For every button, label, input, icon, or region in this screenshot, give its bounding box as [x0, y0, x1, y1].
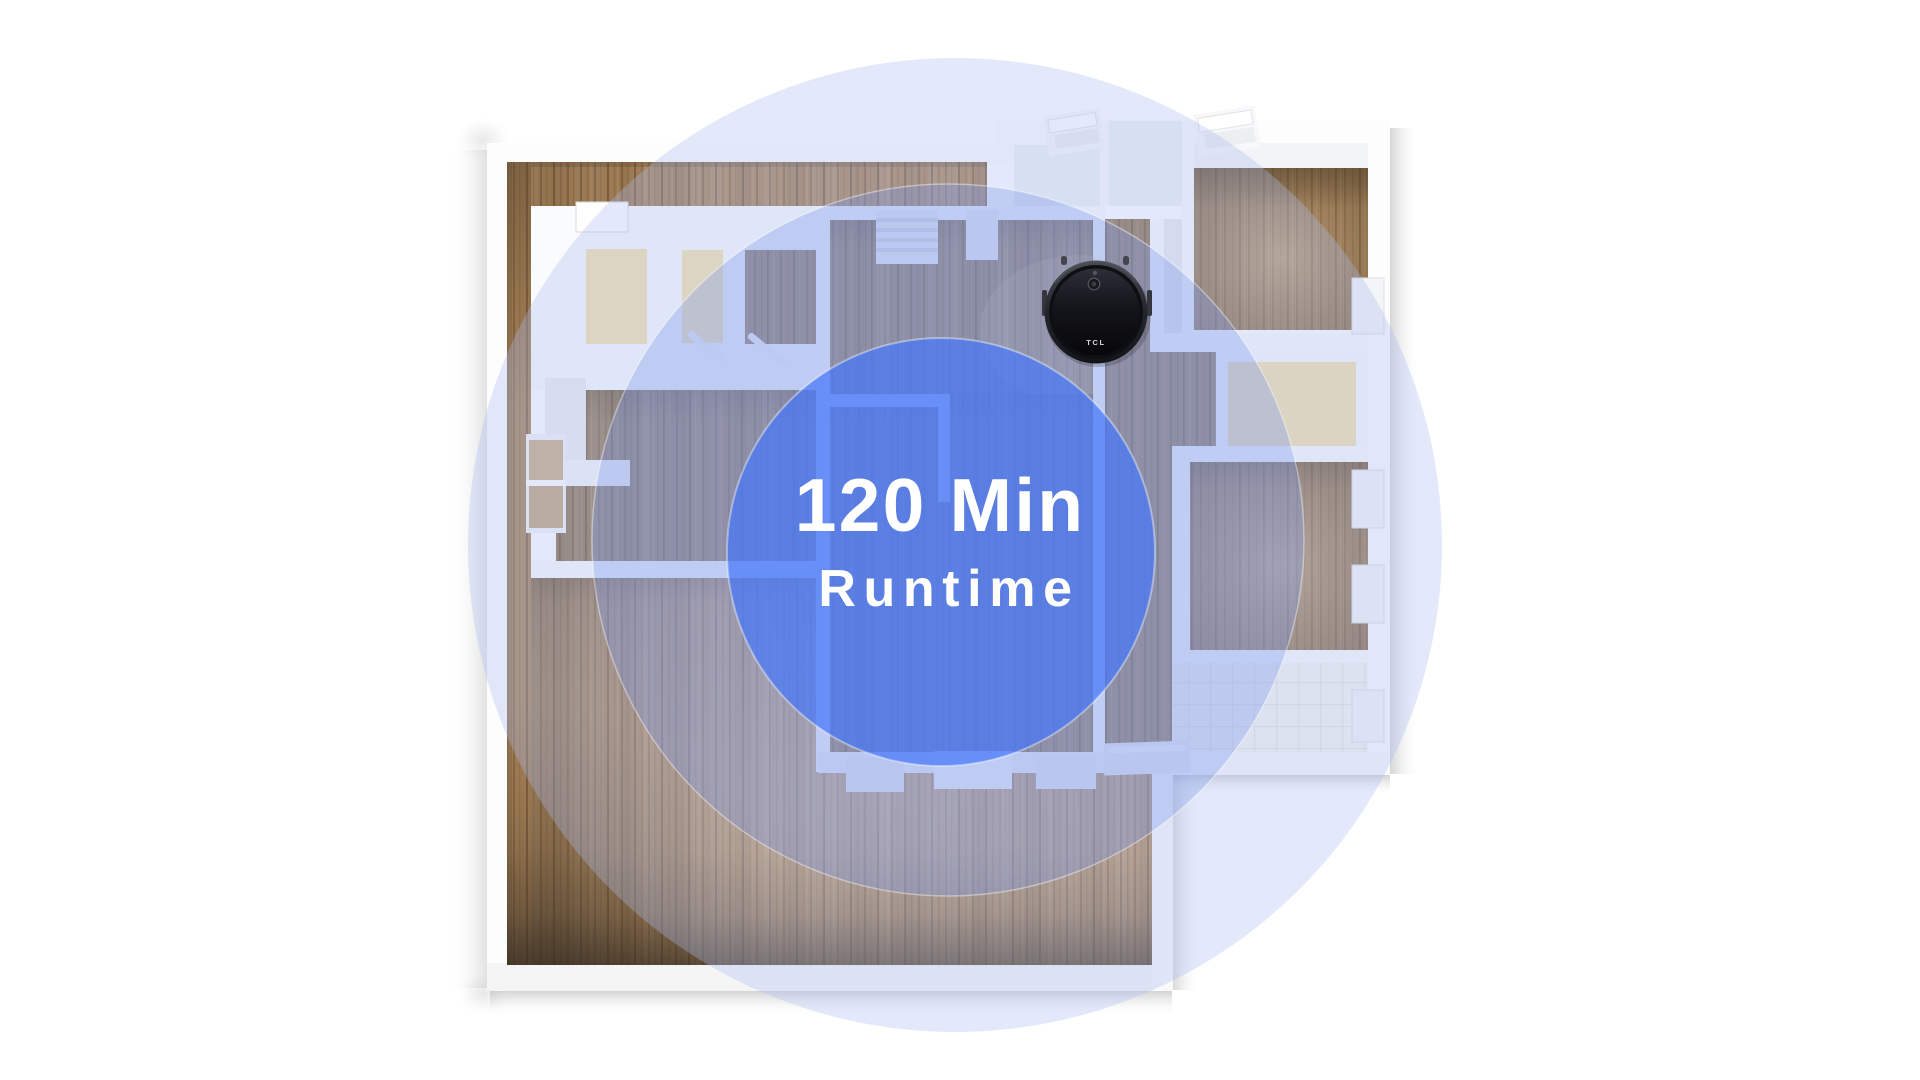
svg-text:120 Min: 120 Min — [795, 463, 1086, 547]
svg-text:TCL: TCL — [1086, 338, 1105, 347]
svg-text:Runtime: Runtime — [818, 560, 1079, 618]
